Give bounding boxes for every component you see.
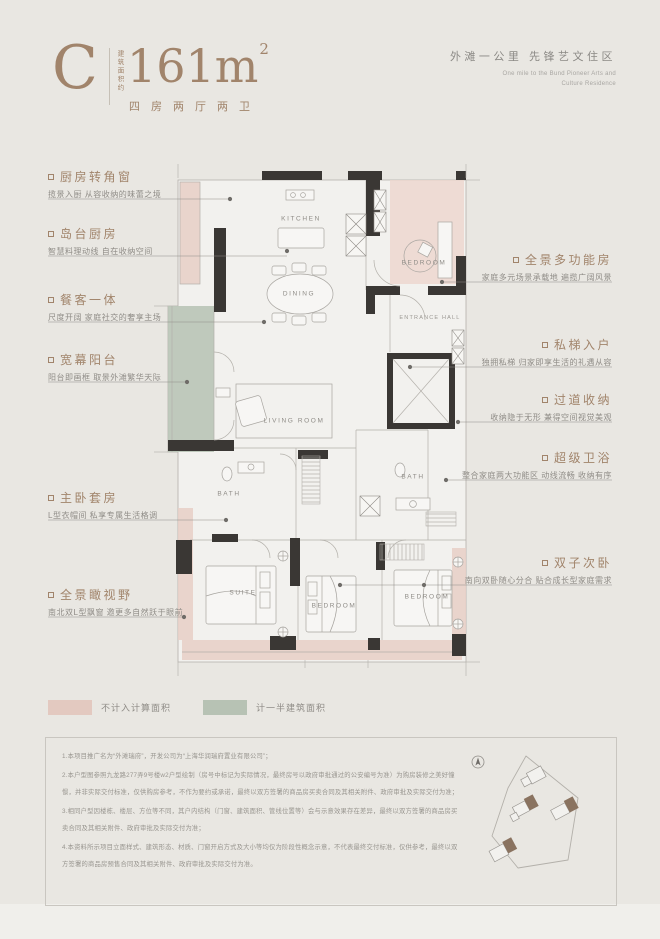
legend-label: 计一半建筑面积 (256, 701, 326, 714)
legend-item-half: 计一半建筑面积 (203, 700, 326, 715)
site-map (462, 746, 612, 894)
annotation-master-suite: 主卧套房 L型衣帽间 私享专属生活格调 (48, 489, 248, 521)
legend-label: 不计入计算面积 (101, 701, 171, 714)
legend: 不计入计算面积 计一半建筑面积 (48, 700, 326, 715)
annotation-title: 全景多功能房 (525, 251, 612, 268)
room-label-entrance-hall: ENTRANCE HALL (399, 315, 460, 321)
annotation-desc: 南向双卧随心分合 贴合成长型家庭需求 (412, 575, 612, 586)
kitchen-island (278, 228, 324, 248)
room-label-dining: DINING (283, 291, 315, 298)
annotation-kitchen-corner-window: 厨房转角窗 揽景入厨 从容收纳的味蕾之境 (48, 168, 248, 200)
disclaimer-text: 1.本项目推广名为“外滩瑞府”，开发公司为“上海华润瑞府置业有限公司”； 2.本… (62, 748, 460, 875)
annotation-island-kitchen: 岛台厨房 智慧料理动线 自在收纳空间 (48, 225, 248, 257)
annotation-desc: 独拥私梯 归家即享生活的礼遇从容 (412, 357, 612, 368)
annotation-title: 主卧套房 (60, 489, 118, 506)
annotation-title: 私梯入户 (554, 336, 612, 353)
disclaimer-paragraph: 2.本户型图参照九龙路277弄9号楼w2户型绘制（房号中标记为实际情况，最终房号… (62, 767, 460, 801)
disclaimer-paragraph: 1.本项目推广名为“外滩瑞府”，开发公司为“上海华润瑞府置业有限公司”； (62, 748, 460, 765)
bullet-icon (513, 257, 519, 263)
annotation-private-elevator: 私梯入户 独拥私梯 归家即享生活的礼遇从容 (412, 336, 612, 368)
bullet-icon (48, 174, 54, 180)
annotation-desc: 揽景入厨 从容收纳的味蕾之境 (48, 189, 248, 200)
annotation-desc: 尺度开阔 家庭社交的奢享主场 (48, 312, 248, 323)
room-label-kitchen: KITCHEN (281, 216, 321, 223)
annotation-title: 过道收纳 (554, 391, 612, 408)
bullet-icon (542, 455, 548, 461)
annotation-desc: 家庭多元场景承载地 遍揽广阔风景 (412, 272, 612, 283)
stove (286, 190, 314, 200)
bullet-icon (48, 592, 54, 598)
site-buildings (488, 766, 579, 862)
annotation-dining-living: 餐客一体 尺度开阔 家庭社交的奢享主场 (48, 291, 248, 323)
bullet-icon (542, 397, 548, 403)
annotation-title: 岛台厨房 (60, 225, 118, 242)
annotation-super-bathroom: 超级卫浴 整合家庭两大功能区 动线流畅 收纳有序 (412, 449, 612, 481)
annotation-title: 双子次卧 (554, 554, 612, 571)
annotation-desc: 收纳隐于无形 兼得空间视觉美观 (412, 412, 612, 423)
annotation-desc: 整合家庭两大功能区 动线流畅 收纳有序 (412, 470, 612, 481)
bullet-icon (542, 560, 548, 566)
room-label-living-room: LIVING ROOM (264, 418, 325, 425)
annotation-hallway-storage: 过道收纳 收纳隐于无形 兼得空间视觉美观 (412, 391, 612, 423)
bullet-icon (542, 342, 548, 348)
floorplan-poster: C 建筑面积约 161m2 四房两厅两卫 外滩一公里 先锋艺文住区 One mi… (0, 0, 660, 939)
annotation-multifunction-room: 全景多功能房 家庭多元场景承载地 遍揽广阔风景 (412, 251, 612, 283)
annotation-desc: 南北双L型飘窗 邀更多自然跃于眼前 (48, 607, 248, 618)
bullet-icon (48, 357, 54, 363)
annotation-title: 全景瞰视野 (60, 586, 133, 603)
legend-item-excluded: 不计入计算面积 (48, 700, 171, 715)
disclaimer-paragraph: 4.本资料所示项目立面样式、建筑形态、材质、门窗开启方式及大小等均仅为阶段性概念… (62, 839, 460, 873)
disclaimer-paragraph: 3.相同户型因楼栋、楼层、方位等不同，其户内结构（门窗、建筑面积、管线位置等）会… (62, 803, 460, 837)
disclaimer-box: 1.本项目推广名为“外滩瑞府”，开发公司为“上海华润瑞府置业有限公司”； 2.本… (45, 737, 617, 906)
annotation-desc: L型衣帽间 私享专属生活格调 (48, 510, 248, 521)
annotation-panoramic-view: 全景瞰视野 南北双L型飘窗 邀更多自然跃于眼前 (48, 586, 248, 618)
vanity-left (238, 462, 264, 473)
annotation-desc: 阳台即画框 取景外滩繁华天际 (48, 372, 248, 383)
annotation-title: 厨房转角窗 (60, 168, 133, 185)
room-label-bedroom-right: BEDROOM (405, 594, 450, 601)
annotation-twin-bedrooms: 双子次卧 南向双卧随心分合 贴合成长型家庭需求 (412, 554, 612, 586)
toilet-left (222, 467, 232, 481)
vanity-right (396, 498, 430, 510)
annotation-desc: 智慧料理动线 自在收纳空间 (48, 246, 248, 257)
annotation-wide-balcony: 宽幕阳台 阳台即画框 取景外滩繁华天际 (48, 351, 248, 383)
room-label-bedroom-mid: BEDROOM (312, 603, 357, 610)
annotation-title: 宽幕阳台 (60, 351, 118, 368)
north-compass-icon (472, 756, 484, 768)
half-area-swatch (203, 700, 247, 715)
bullet-icon (48, 297, 54, 303)
bullet-icon (48, 231, 54, 237)
bullet-icon (48, 495, 54, 501)
annotation-title: 超级卫浴 (554, 449, 612, 466)
excluded-area-swatch (48, 700, 92, 715)
annotation-title: 餐客一体 (60, 291, 118, 308)
